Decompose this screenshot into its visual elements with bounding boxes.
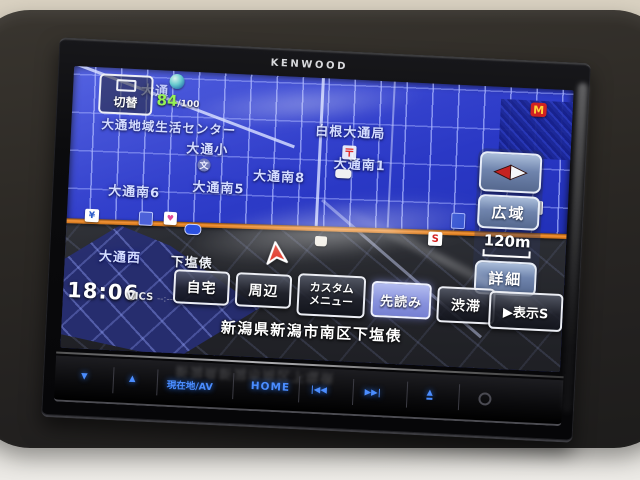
dashboard-photo: KENWOOD 大通 大通地域生活センター 白根大通局 大通小 大通南6 大通南…	[0, 0, 640, 480]
display-mode-button[interactable]: ▶表示S	[488, 291, 564, 333]
map-label-minami8: 大通南8	[253, 165, 306, 187]
route-number-badge	[184, 224, 202, 236]
poi-blue-icon	[451, 213, 466, 230]
map-label-minami6: 大通南6	[108, 180, 161, 202]
gps-reception-count: 84/100	[156, 91, 200, 111]
poi-suzuki-dealer-icon: S	[428, 231, 443, 246]
poi-cafe-icon	[315, 236, 327, 247]
map-zoom-controls: 広域 120m 詳細	[471, 148, 544, 300]
postal-mark-icon: 〒	[342, 145, 357, 160]
gps-value: 84	[156, 91, 178, 110]
map-scale-value: 120m	[483, 233, 531, 250]
poi-restaurant-icon: ♥	[164, 212, 178, 226]
home-hardware-button[interactable]: HOME	[250, 380, 290, 394]
next-track-button[interactable]: ▶▶|	[364, 388, 381, 399]
eject-button[interactable]: ▲	[426, 389, 433, 400]
current-location-av-button[interactable]: 現在地/AV	[166, 377, 213, 393]
button-divider	[232, 373, 234, 399]
power-indicator[interactable]	[478, 392, 492, 406]
head-unit: KENWOOD 大通 大通地域生活センター 白根大通局 大通小 大通南6 大通南…	[41, 37, 591, 443]
screen-mode-icon	[116, 79, 137, 92]
poi-car-icon	[335, 169, 351, 179]
button-divider	[352, 379, 354, 405]
zoom-out-button[interactable]: 広域	[477, 194, 541, 231]
custom-menu-line2: メニュー	[309, 295, 354, 310]
map-label-nishi: 大通西	[99, 245, 142, 266]
view-switch-button[interactable]: 切替	[98, 73, 154, 116]
map-scale-bracket	[482, 249, 530, 258]
poi-bank-icon: ¥	[85, 209, 100, 223]
view-switch-label: 切替	[113, 92, 138, 110]
gps-max: /100	[177, 99, 200, 110]
map-label-post-office: 白根大通局	[315, 120, 386, 142]
vics-label: VICS	[127, 291, 154, 303]
map-label-school: 大通小	[186, 138, 229, 159]
current-position-cursor-icon	[262, 239, 290, 267]
button-divider	[458, 384, 460, 410]
custom-menu-button[interactable]: カスタム メニュー	[296, 273, 366, 318]
map-label-minami5: 大通南5	[192, 176, 245, 198]
button-divider	[406, 382, 408, 408]
button-divider	[298, 376, 300, 402]
volume-up-button[interactable]: ▴	[129, 371, 136, 386]
previous-track-button[interactable]: |◀◀	[310, 385, 327, 396]
lookahead-button[interactable]: 先読み	[370, 281, 432, 320]
nearby-search-button[interactable]: 周辺	[235, 272, 293, 309]
volume-down-button[interactable]: ▾	[81, 369, 88, 384]
map-scale: 120m	[477, 231, 536, 260]
compass-needle-icon	[491, 163, 530, 183]
poi-mcdonalds-icon: M	[530, 102, 547, 117]
vics-time: --:--	[157, 294, 174, 305]
button-divider	[112, 367, 114, 393]
go-home-button[interactable]: 自宅	[173, 269, 231, 306]
heading-compass-button[interactable]	[479, 151, 543, 194]
brand-logo: KENWOOD	[270, 58, 348, 73]
poi-building-icon	[139, 211, 154, 226]
button-divider	[156, 369, 158, 395]
nav-screen: 大通 大通地域生活センター 白根大通局 大通小 大通南6 大通南5 大通南8 大…	[60, 66, 573, 372]
traffic-button[interactable]: 渋滞	[436, 286, 496, 325]
